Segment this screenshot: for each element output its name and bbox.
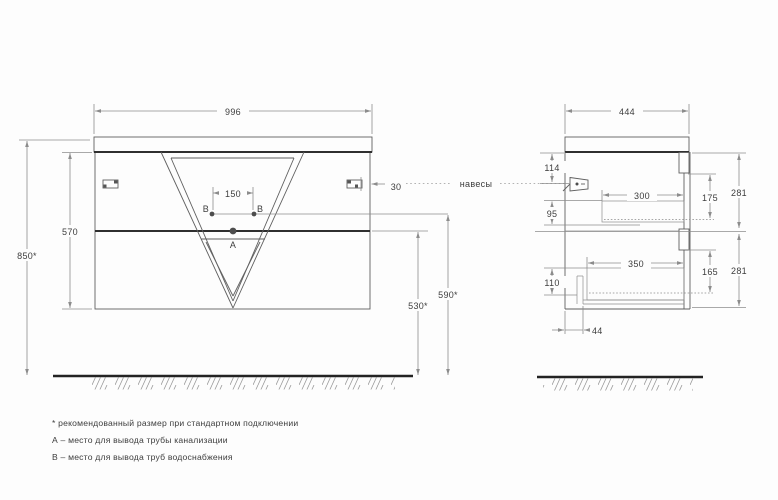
- dim-350: 350: [587, 257, 683, 269]
- drawer1-interior: [602, 201, 714, 222]
- dim-590: 590*: [431, 215, 465, 375]
- dim-996-label: 996: [225, 107, 241, 117]
- floor-hatch-front: [88, 378, 395, 390]
- dim-570: 570: [55, 153, 92, 310]
- wall-hanger-side: [540, 178, 588, 192]
- cabinet-front-body: [94, 137, 372, 309]
- cabinet-side-body: [565, 137, 690, 309]
- dim-996: 996: [94, 104, 372, 134]
- hole-b-right: [252, 212, 257, 217]
- hole-b-left-label: B: [203, 204, 209, 214]
- dim-350-label: 350: [628, 259, 644, 269]
- drain-channel: [577, 276, 583, 304]
- dim-530-label: 530*: [408, 301, 428, 311]
- dim-114-label: 114: [544, 163, 559, 173]
- hole-a-label: A: [230, 240, 236, 250]
- note-recommended-size: * рекомендованный размер при стандартном…: [52, 418, 298, 428]
- dim-175-label: 175: [702, 193, 718, 203]
- dim-850-label: 850*: [17, 251, 37, 261]
- vanity-dimension-drawing: B B A 150 996 5: [0, 0, 778, 500]
- hangers-label: навесы: [460, 179, 492, 189]
- dim-300-label: 300: [634, 191, 650, 201]
- dim-590-label: 590*: [438, 290, 458, 300]
- dim-44-label: 44: [592, 326, 603, 336]
- dim-444: 444: [565, 104, 689, 134]
- mounting-bracket-right: [347, 177, 362, 191]
- side-view: 444 114 95 110: [535, 104, 754, 391]
- dim-95-label: 95: [547, 209, 558, 219]
- drawer-divider-rail: [679, 229, 689, 250]
- dim-150-label: 150: [225, 189, 241, 199]
- dim-530: 530*: [372, 231, 435, 375]
- dim-30-hangers-callout: 30 навесы: [372, 178, 568, 192]
- dim-570-label: 570: [62, 227, 78, 237]
- front-view: B B A 150 996 5: [11, 104, 567, 390]
- dim-175: 175: [688, 174, 725, 218]
- floor-side: [537, 377, 703, 391]
- floor-front: [53, 376, 413, 390]
- holes-b: B B: [203, 204, 448, 216]
- note-b-water: В – место для вывода труб водоснабжения: [52, 452, 233, 462]
- dim-110-label: 110: [544, 278, 559, 288]
- dim-850: 850*: [11, 140, 90, 375]
- dim-110: 110: [538, 268, 587, 295]
- dim-281-bottom-label: 281: [731, 266, 747, 276]
- dim-165: 165: [688, 250, 725, 292]
- hole-b-right-label: B: [257, 204, 263, 214]
- notes: * рекомендованный размер при стандартном…: [52, 418, 298, 462]
- dim-165-label: 165: [702, 267, 718, 277]
- dim-114: 114: [538, 153, 566, 182]
- drawer2-interior: [583, 268, 714, 304]
- dim-150: 150: [213, 187, 253, 210]
- dim-30-label: 30: [391, 182, 402, 192]
- drawer1-top-rail: [679, 153, 689, 174]
- dim-281-top-label: 281: [731, 188, 747, 198]
- dim-44: 44: [552, 306, 603, 336]
- hole-b-left: [210, 212, 215, 217]
- floor-hatch-side: [543, 379, 693, 391]
- note-a-drain: А – место для вывода трубы канализации: [52, 435, 228, 445]
- dim-300: 300: [602, 189, 683, 201]
- dim-95: 95: [541, 201, 640, 226]
- mounting-bracket-left: [103, 180, 118, 188]
- technical-drawing-page: B B A 150 996 5: [0, 0, 778, 500]
- dim-444-label: 444: [619, 107, 635, 117]
